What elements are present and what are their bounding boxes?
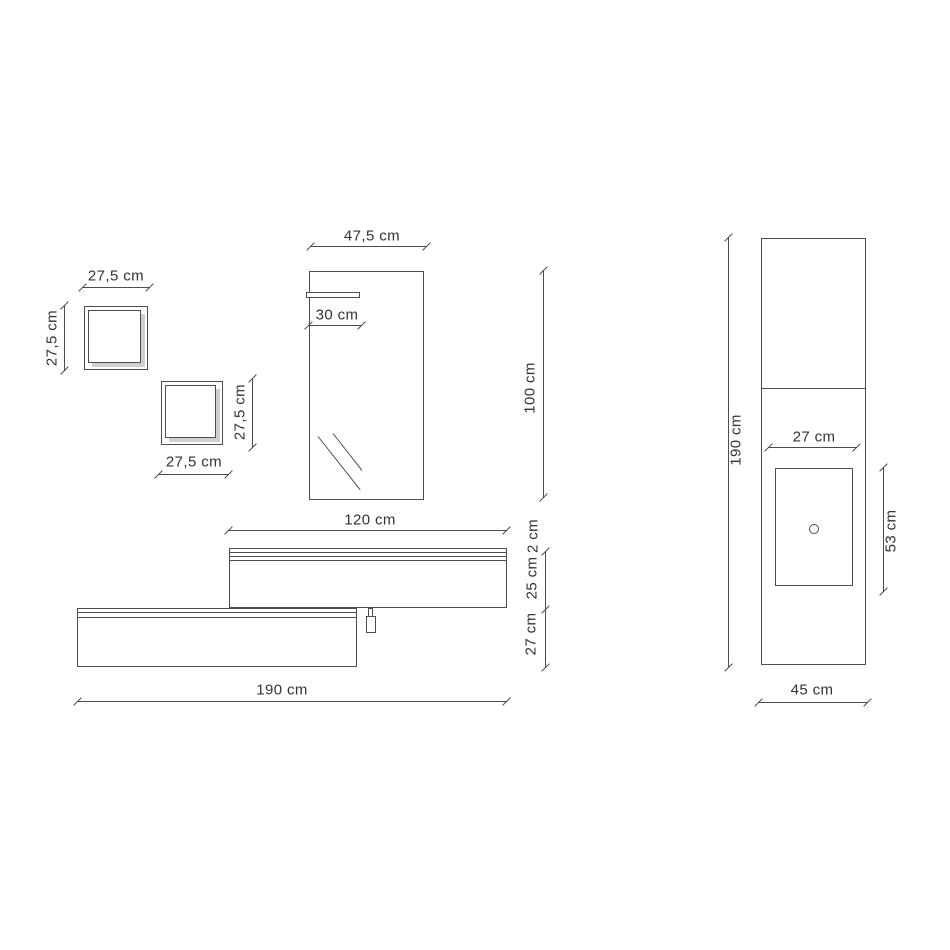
- basin-width-label: 27 cm: [793, 429, 836, 446]
- cube2-height-label: 27,5 cm: [232, 384, 249, 440]
- vanity-lower-top-edge-line-2: [78, 617, 356, 618]
- mirror-width-label: 47,5 cm: [344, 228, 400, 245]
- column-front-view: [761, 238, 866, 665]
- vanity-upper-unit: [229, 548, 507, 608]
- cube2-width-label: 27,5 cm: [166, 454, 222, 471]
- cube2-width-dimension-line: [158, 474, 229, 475]
- vanity-heights-dimension-line: [545, 551, 546, 668]
- cube1-height-label: 27,5 cm: [44, 310, 61, 366]
- column-height-label: 190 cm: [728, 414, 745, 466]
- vanity-top-thickness-label: 2 cm: [525, 519, 542, 553]
- vanity-upper-top-edge-line-3: [230, 560, 506, 561]
- basin-height-dimension-line: [883, 467, 884, 592]
- column-depth-label: 45 cm: [791, 682, 834, 699]
- cube1-width-label: 27,5 cm: [88, 268, 144, 285]
- mirror-width-dimension-line: [310, 246, 427, 247]
- vanity-upper-top-edge-line-2: [230, 556, 506, 557]
- technical-drawing-canvas: 27,5 cm 27,5 cm 27,5 cm 27,5 cm 47,5 cm …: [0, 0, 950, 950]
- vanity-upper-height-label: 25 cm: [524, 557, 541, 600]
- basin-drain-hole: [809, 524, 819, 534]
- cube1-door-panel: [88, 310, 141, 363]
- mirror-shelf-width-label: 30 cm: [316, 307, 359, 324]
- basin-width-dimension-line: [768, 447, 857, 448]
- cube1-width-dimension-line: [82, 287, 150, 288]
- cube2-door-panel: [165, 385, 216, 438]
- vanity-lower-top-edge-line-1: [78, 612, 356, 613]
- vanity-top-width-label: 120 cm: [344, 512, 396, 529]
- faucet-body: [366, 616, 376, 633]
- mirror-height-dimension-line: [543, 270, 544, 498]
- vanity-upper-top-edge-line-1: [230, 552, 506, 553]
- column-depth-dimension-line: [758, 702, 868, 703]
- cube2-height-dimension-line: [252, 378, 253, 448]
- vanity-top-width-dimension-line: [228, 530, 507, 531]
- column-height-dimension-line: [728, 237, 729, 668]
- cube2-front-view: [161, 381, 223, 445]
- vanity-heights-mid-tick: [541, 605, 549, 613]
- cube1-front-view: [84, 306, 148, 370]
- cube1-height-dimension-line: [64, 305, 65, 371]
- column-divider-line: [762, 388, 865, 389]
- basin-height-label: 53 cm: [883, 510, 900, 553]
- mirror-front-view: [309, 271, 424, 500]
- mirror-shelf-dimension-line: [308, 325, 362, 326]
- mirror-height-label: 100 cm: [522, 362, 539, 414]
- vanity-total-width-dimension-line: [77, 701, 507, 702]
- vanity-total-width-label: 190 cm: [256, 682, 308, 699]
- mirror-shelf: [306, 292, 360, 298]
- vanity-lower-height-label: 27 cm: [523, 613, 540, 656]
